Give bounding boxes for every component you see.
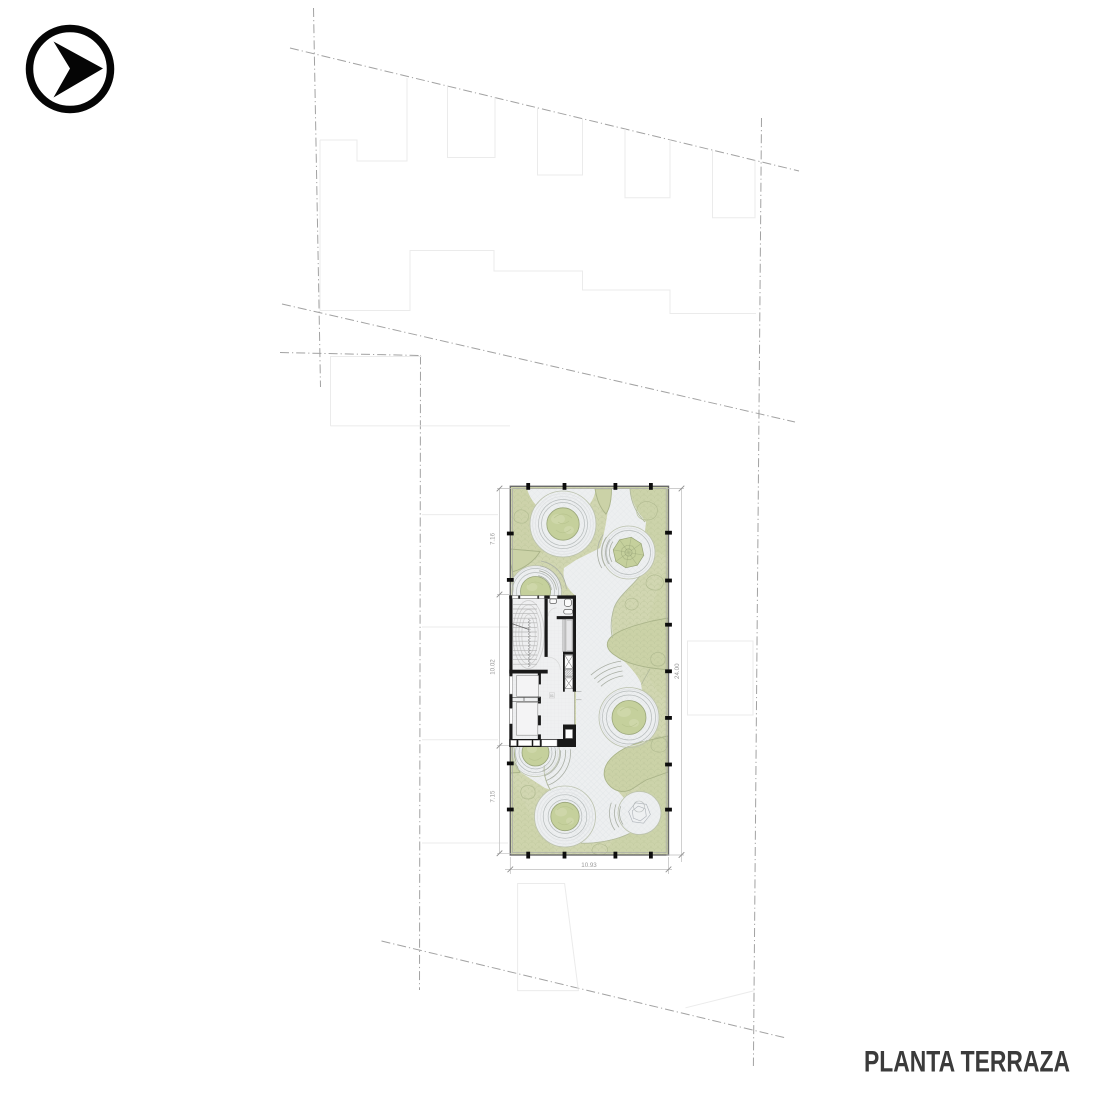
svg-text:7.16: 7.16 [490,532,497,545]
svg-text:7.15: 7.15 [490,790,497,803]
svg-text:10.02: 10.02 [490,659,497,675]
svg-text:24.00: 24.00 [674,663,681,679]
svg-text:10.93: 10.93 [581,862,597,869]
svg-text:01: 01 [550,694,554,698]
svg-text:PLANTA TERRAZA: PLANTA TERRAZA [864,1046,1070,1079]
